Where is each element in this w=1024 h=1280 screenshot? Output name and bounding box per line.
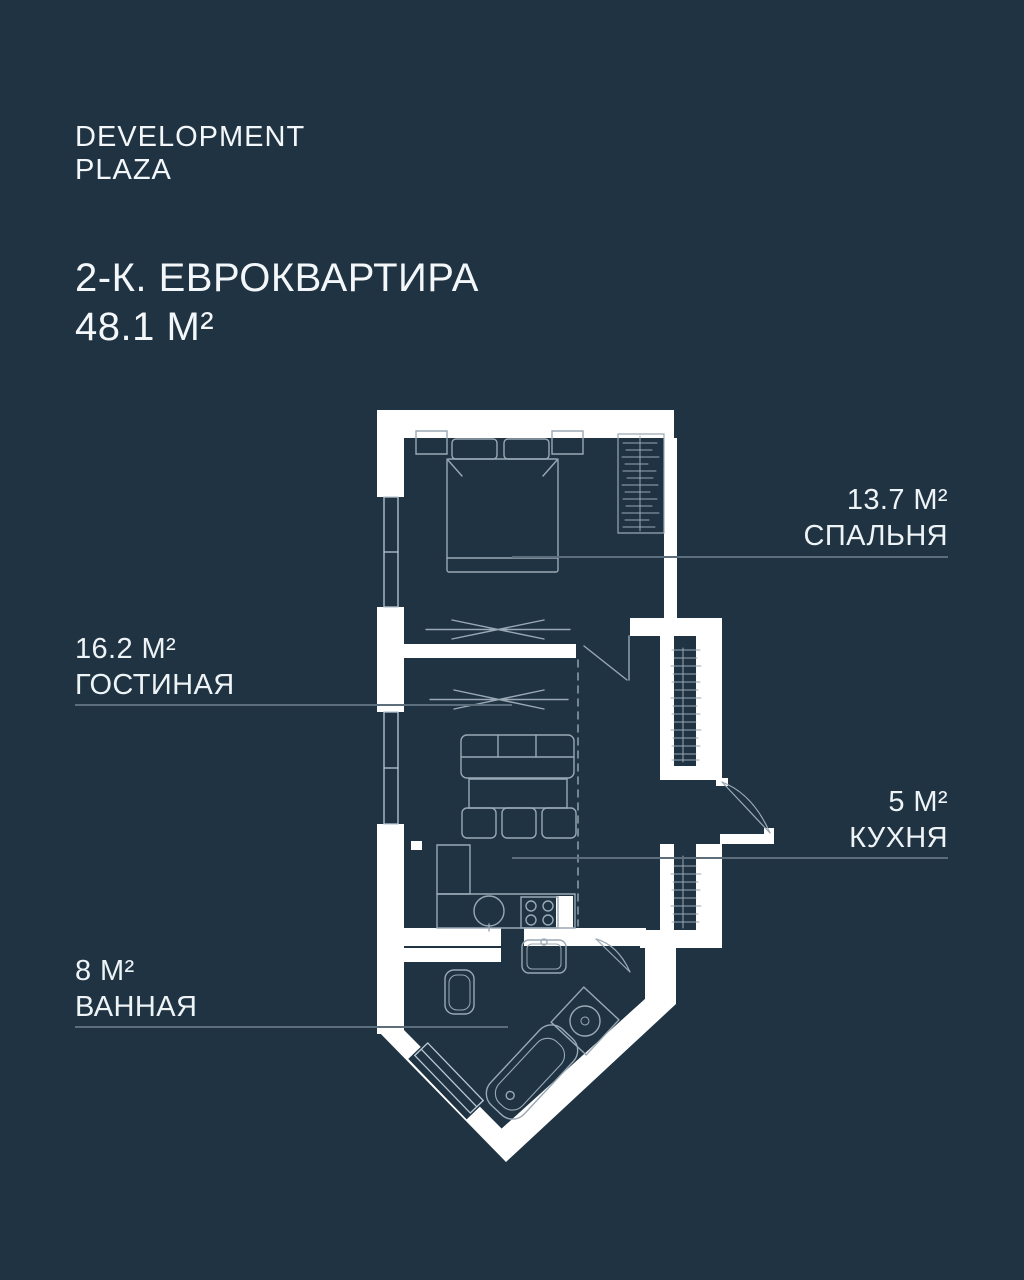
sliding-partition-icon [426,620,570,709]
room-area-kitchen: 5 М² [849,784,948,820]
brand-line-1: DEVELOPMENT [75,121,305,154]
entrance-door [722,782,770,833]
washing-machine [445,970,474,1014]
leader-line-living [75,704,512,706]
kitchen-sink [474,896,504,931]
room-label-bedroom: 13.7 М² СПАЛЬНЯ [803,482,948,554]
floor-plan-poster: { "theme": { "background": "#1f3343", "t… [0,0,1024,1280]
listing-area: 48.1 М² [75,303,479,352]
room-name-living: ГОСТИНАЯ [75,667,235,703]
interior-door-living [584,636,629,680]
wardrobe-bedroom [618,434,664,533]
room-label-bathroom: 8 М² ВАННАЯ [75,953,197,1025]
leader-line-bathroom [75,1026,508,1028]
room-name-kitchen: КУХНЯ [849,820,948,856]
floor-plan [370,400,790,1170]
room-label-living: 16.2 М² ГОСТИНАЯ [75,631,235,703]
listing-title: 2-К. ЕВРОКВАРТИРА 48.1 М² [75,254,479,352]
sofa [461,735,574,778]
leader-line-bedroom [512,556,948,558]
room-area-living: 16.2 М² [75,631,235,667]
window-living [384,712,398,824]
window-bedroom [384,497,398,607]
listing-type: 2-К. ЕВРОКВАРТИРА [75,254,479,303]
room-label-kitchen: 5 М² КУХНЯ [849,784,948,856]
brand-logo: DEVELOPMENT PLAZA [75,121,305,187]
brand-line-2: PLAZA [75,154,305,187]
dining-table [469,779,567,808]
stove [521,897,558,928]
room-name-bathroom: ВАННАЯ [75,989,197,1025]
bed [447,439,558,572]
room-name-bedroom: СПАЛЬНЯ [803,518,948,554]
room-area-bedroom: 13.7 М² [803,482,948,518]
stools [462,808,576,838]
leader-line-kitchen [512,857,948,859]
room-area-bathroom: 8 М² [75,953,197,989]
